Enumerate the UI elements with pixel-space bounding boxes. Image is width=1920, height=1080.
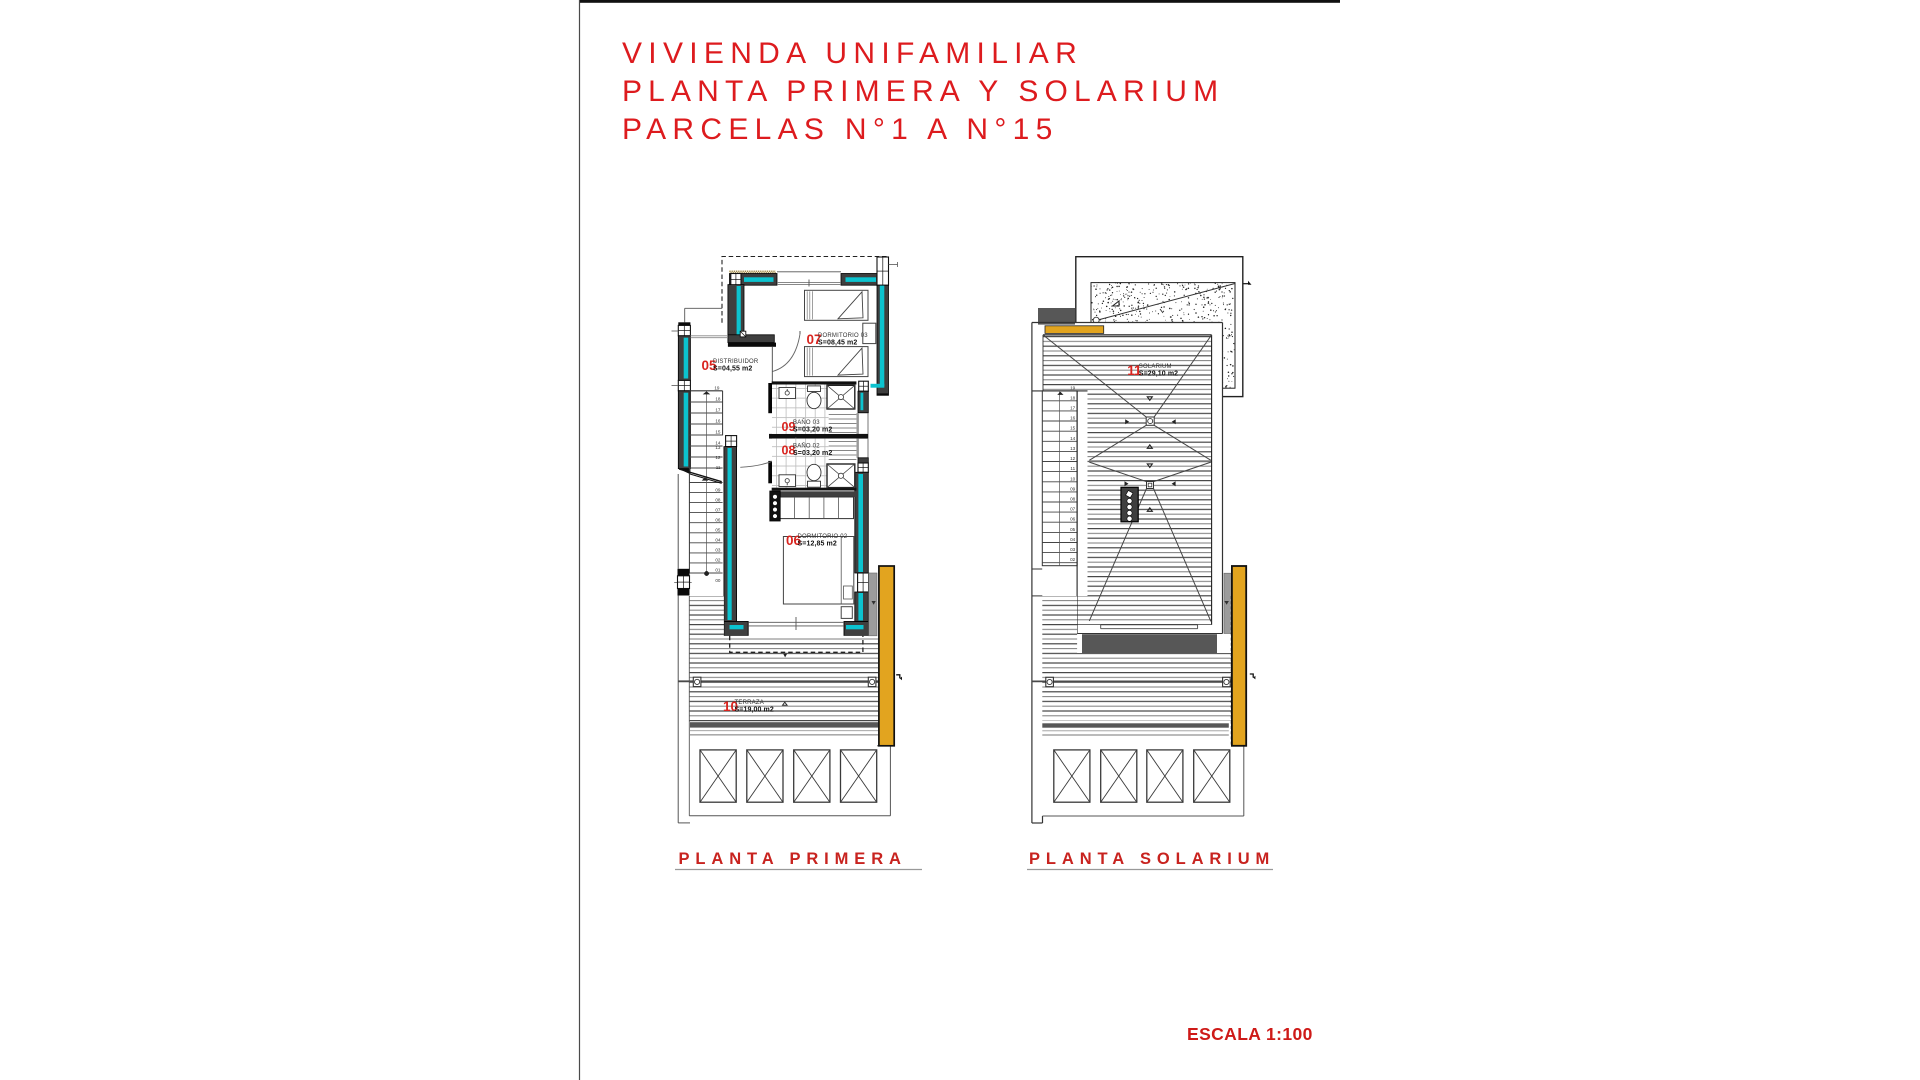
svg-text:DORMITORIO 03: DORMITORIO 03 (818, 333, 868, 339)
svg-text:13: 13 (1070, 446, 1076, 451)
svg-text:05: 05 (715, 528, 721, 533)
svg-text:DORMITORIO 02: DORMITORIO 02 (798, 534, 848, 540)
svg-text:S=03,20 m2: S=03,20 m2 (793, 450, 832, 457)
svg-text:PLANTA SOLARIUM: PLANTA SOLARIUM (1029, 850, 1275, 868)
svg-text:16: 16 (1070, 416, 1076, 421)
svg-text:11: 11 (716, 465, 721, 470)
svg-text:19: 19 (1070, 386, 1076, 391)
svg-text:S=29,10 m2: S=29,10 m2 (1139, 371, 1178, 378)
svg-text:SOLARIUM: SOLARIUM (1139, 364, 1172, 370)
svg-text:02: 02 (715, 558, 721, 563)
svg-text:13: 13 (715, 445, 721, 450)
svg-text:S=03,20 m2: S=03,20 m2 (793, 427, 832, 434)
svg-text:09: 09 (715, 487, 721, 492)
svg-text:01: 01 (715, 568, 721, 573)
svg-text:04: 04 (1070, 537, 1076, 542)
svg-text:17: 17 (715, 408, 721, 413)
svg-text:ESCALA 1:100: ESCALA 1:100 (1187, 1024, 1313, 1044)
svg-text:16: 16 (715, 419, 721, 424)
svg-text:DISTRIBUIDOR: DISTRIBUIDOR (713, 359, 759, 365)
svg-text:S=19,00 m2: S=19,00 m2 (735, 707, 774, 714)
svg-text:12: 12 (1070, 456, 1076, 461)
svg-text:PLANTA PRIMERA: PLANTA PRIMERA (679, 850, 907, 868)
svg-text:11: 11 (1070, 466, 1075, 471)
svg-text:S=08,45 m2: S=08,45 m2 (818, 340, 857, 347)
svg-text:07: 07 (1070, 507, 1076, 512)
svg-text:BAÑO 02: BAÑO 02 (793, 443, 820, 450)
svg-text:S=12,85 m2: S=12,85 m2 (798, 541, 837, 548)
svg-text:08: 08 (1070, 497, 1076, 502)
svg-text:10: 10 (1070, 476, 1076, 481)
svg-text:18: 18 (1070, 395, 1076, 400)
svg-text:12: 12 (715, 455, 721, 460)
svg-text:PLANTA PRIMERA Y SOLARIUM: PLANTA PRIMERA Y SOLARIUM (622, 75, 1224, 108)
svg-text:03: 03 (715, 548, 721, 553)
svg-text:15: 15 (715, 430, 721, 435)
svg-text:00: 00 (715, 578, 721, 583)
svg-text:02: 02 (1070, 557, 1076, 562)
svg-text:06: 06 (1070, 517, 1076, 522)
svg-text:PARCELAS N°1 A N°15: PARCELAS N°1 A N°15 (622, 113, 1059, 146)
svg-text:BAÑO 03: BAÑO 03 (793, 419, 820, 426)
svg-text:04: 04 (715, 538, 721, 543)
svg-text:17: 17 (1070, 405, 1076, 410)
svg-text:03: 03 (1070, 547, 1076, 552)
svg-text:09: 09 (1070, 486, 1076, 491)
svg-text:TERRAZA: TERRAZA (735, 700, 764, 706)
svg-text:05: 05 (1070, 527, 1076, 532)
svg-text:VIVIENDA UNIFAMILIAR: VIVIENDA UNIFAMILIAR (622, 37, 1083, 70)
svg-text:06: 06 (715, 518, 721, 523)
svg-text:07: 07 (715, 507, 721, 512)
svg-text:19: 19 (714, 385, 720, 390)
svg-text:14: 14 (1070, 436, 1076, 441)
svg-text:15: 15 (1070, 426, 1076, 431)
svg-text:08: 08 (715, 497, 721, 502)
svg-text:18: 18 (715, 397, 721, 402)
svg-text:S=04,55 m2: S=04,55 m2 (713, 366, 752, 373)
